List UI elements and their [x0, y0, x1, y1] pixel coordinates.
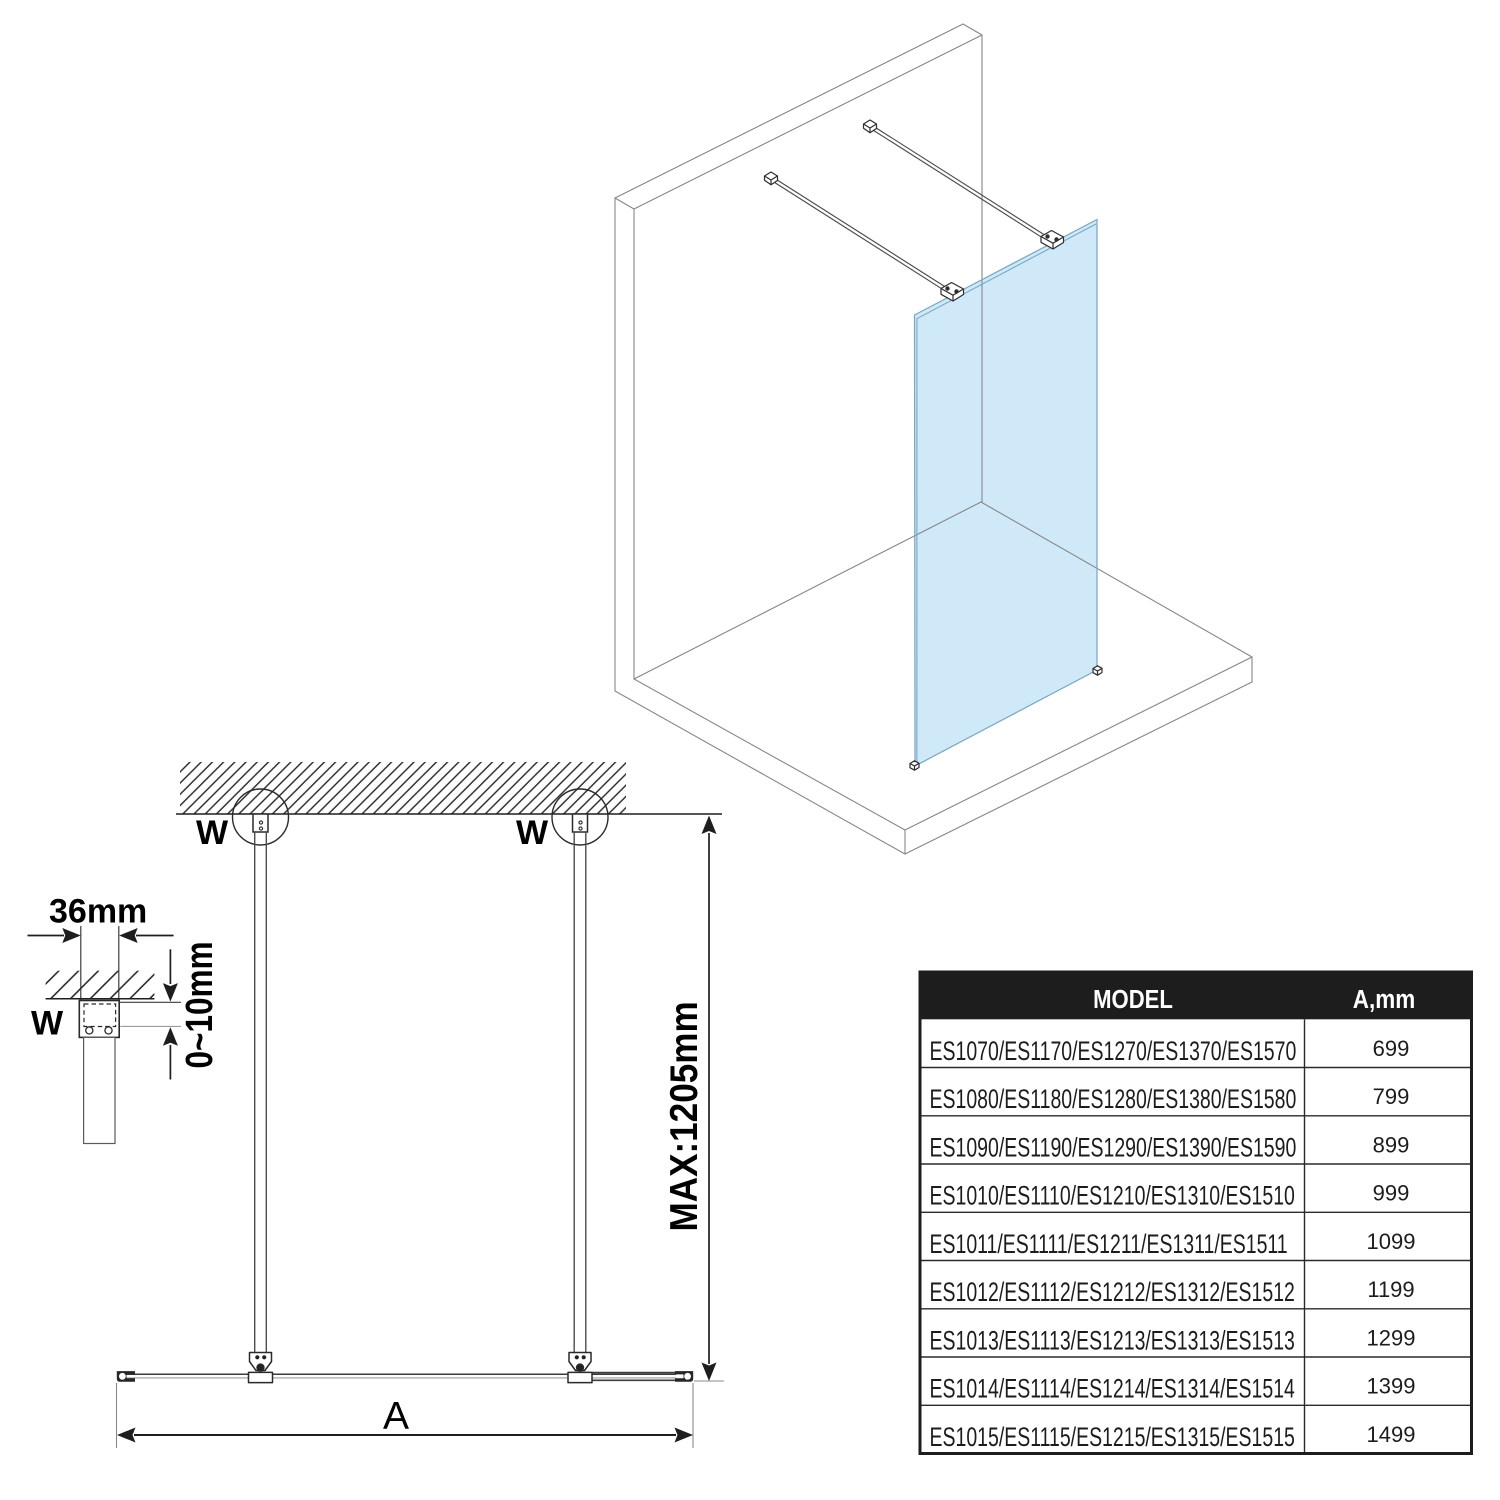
svg-text:ES1070/ES1170/ES1270/ES1370/ES: ES1070/ES1170/ES1270/ES1370/ES1570 [930, 1036, 1297, 1066]
svg-text:W: W [516, 814, 549, 852]
svg-text:ES1080/ES1180/ES1280/ES1380/ES: ES1080/ES1180/ES1280/ES1380/ES1580 [930, 1084, 1297, 1114]
svg-text:MAX:1205mm: MAX:1205mm [661, 1001, 705, 1231]
svg-text:1299: 1299 [1367, 1325, 1416, 1350]
svg-text:1099: 1099 [1367, 1229, 1416, 1254]
svg-text:999: 999 [1373, 1181, 1410, 1206]
svg-text:ES1011/ES1111/ES1211/ES1311/ES: ES1011/ES1111/ES1211/ES1311/ES1511 [930, 1229, 1288, 1259]
svg-text:1199: 1199 [1367, 1277, 1414, 1302]
svg-text:ES1090/ES1190/ES1290/ES1390/ES: ES1090/ES1190/ES1290/ES1390/ES1590 [930, 1132, 1297, 1162]
svg-text:899: 899 [1373, 1132, 1410, 1157]
svg-text:ES1010/ES1110/ES1210/ES1310/ES: ES1010/ES1110/ES1210/ES1310/ES1510 [930, 1181, 1295, 1211]
svg-text:799: 799 [1373, 1084, 1410, 1109]
svg-text:36mm: 36mm [49, 893, 147, 931]
svg-text:1499: 1499 [1367, 1422, 1416, 1447]
svg-text:ES1015/ES1115/ES1215/ES1315/ES: ES1015/ES1115/ES1215/ES1315/ES1515 [930, 1422, 1295, 1452]
svg-text:W: W [31, 1005, 64, 1043]
svg-text:0~10mm: 0~10mm [178, 941, 220, 1068]
svg-text:1399: 1399 [1367, 1374, 1416, 1399]
svg-text:A,mm: A,mm [1353, 986, 1415, 1015]
svg-text:ES1012/ES1112/ES1212/ES1312/ES: ES1012/ES1112/ES1212/ES1312/ES1512 [930, 1277, 1295, 1307]
svg-text:MODEL: MODEL [1093, 985, 1173, 1014]
svg-text:A: A [383, 1395, 409, 1438]
svg-text:W: W [196, 814, 229, 852]
svg-text:ES1014/ES1114/ES1214/ES1314/ES: ES1014/ES1114/ES1214/ES1314/ES1514 [930, 1374, 1295, 1404]
svg-text:699: 699 [1373, 1036, 1410, 1061]
svg-text:ES1013/ES1113/ES1213/ES1313/ES: ES1013/ES1113/ES1213/ES1313/ES1513 [930, 1325, 1295, 1355]
